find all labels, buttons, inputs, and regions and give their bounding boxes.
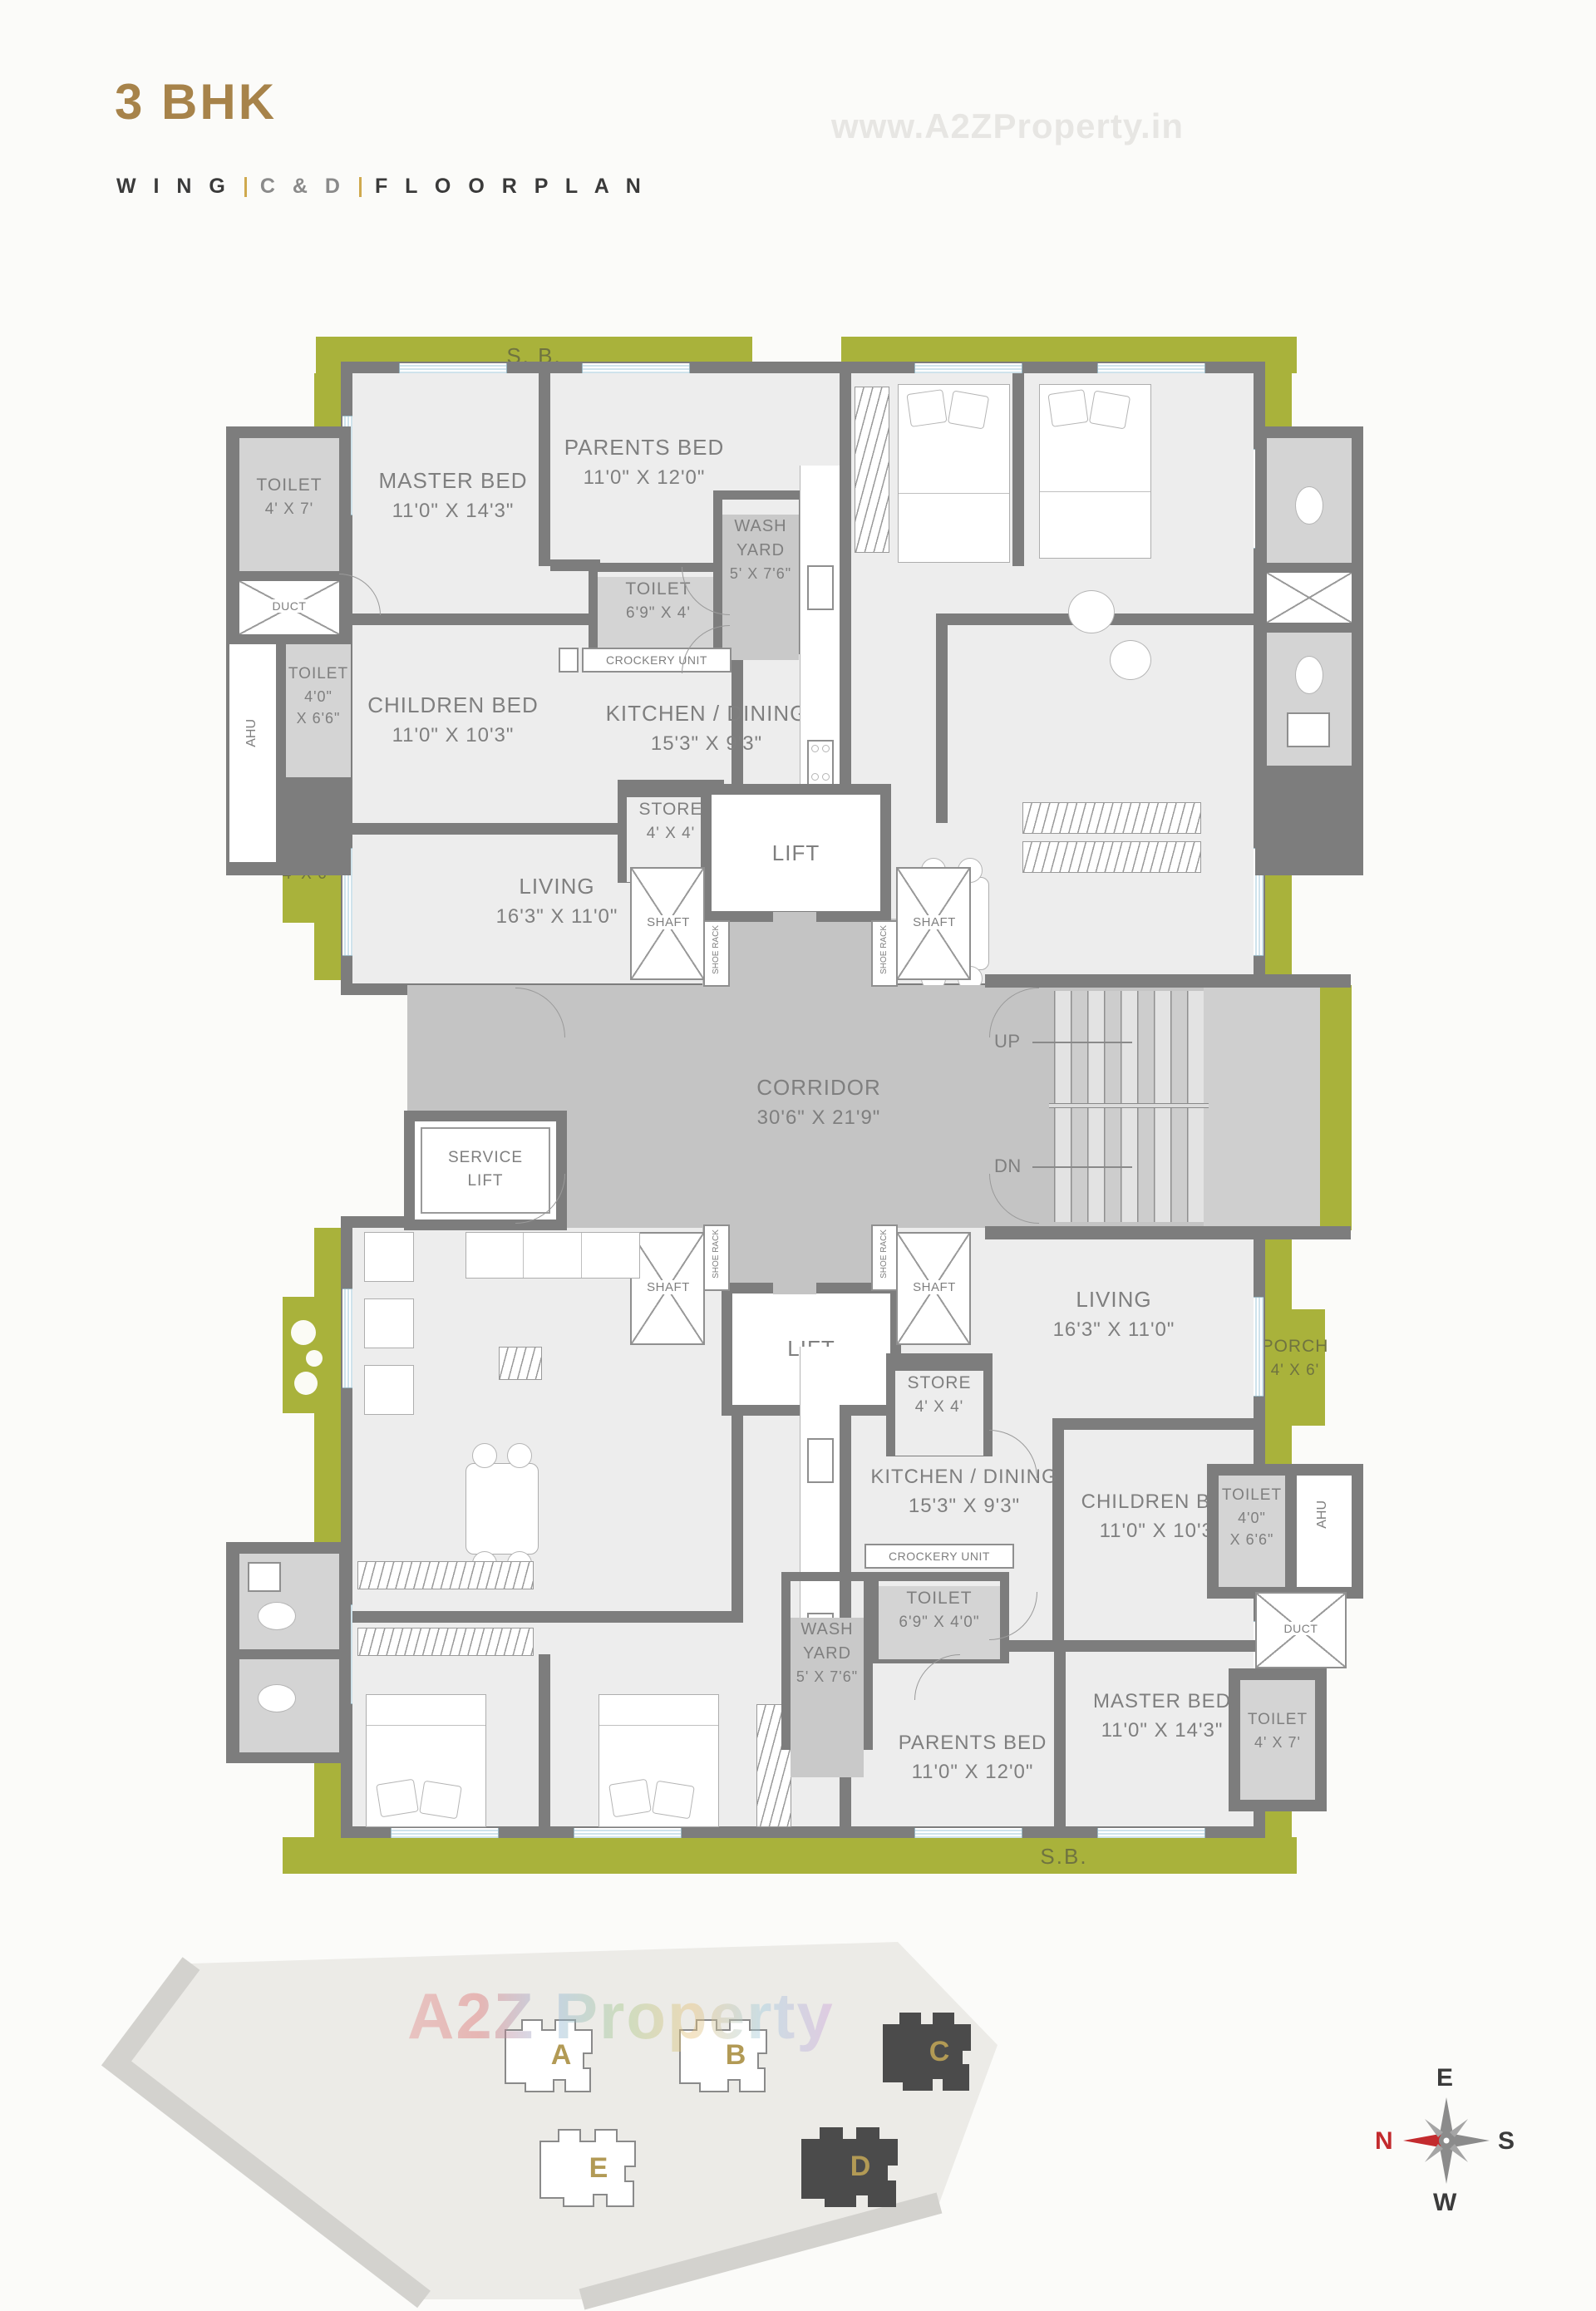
stair-divider [1049,1103,1209,1108]
shoe-rack: SHOE RACK [703,1224,730,1291]
room-toilet-left-c: TOILET 4'0" X 6'6" [286,644,351,777]
lift-door-gap [773,912,816,924]
shoe-rack-label: SHOE RACK [712,1229,721,1279]
crockery-unit-d: CROCKERY UNIT [864,1544,1014,1569]
chair [472,1443,497,1468]
corridor-name: CORRIDOR [731,1072,906,1104]
sink-icon [248,1562,281,1592]
shoe-rack-label: SHOE RACK [879,1229,889,1279]
kitchen-d-dims: 15'3" X 9'3" [856,1492,1072,1521]
master-c-dims: 11'0" X 14'3" [357,497,549,526]
page-title: 3 BHK [115,73,277,131]
tv-unit [499,1347,542,1380]
ottoman [1110,640,1151,680]
toilet [1267,633,1352,766]
toilet-left-c-dims1: 4'0" [286,686,351,707]
wash-c-l3: 5' X 7'6" [722,563,799,584]
stove-icon [807,740,834,786]
sink-icon [807,565,834,610]
room-toilet-top-d: TOILET 4' X 7' [1240,1680,1315,1800]
service-lift-l1: SERVICE [415,1146,556,1170]
porch-d-dims: 4' X 6' [1259,1359,1332,1382]
window [914,363,1022,373]
wing-c-label: C [877,2005,1002,2098]
sb-label-bottom: S.B. [981,1844,1147,1870]
sink-icon [807,1438,834,1483]
window [399,363,507,373]
subtitle-floorplan: F L O O R P L A N [375,175,647,199]
shoe-rack-label: SHOE RACK [879,925,889,974]
shoe-rack: SHOE RACK [871,1224,898,1291]
watermark-bottom: A2Z Property [407,1978,835,2054]
ahu-c-label: AHU [244,719,259,747]
window [1254,1297,1263,1397]
wc-icon [1295,486,1323,525]
armchair [364,1232,414,1282]
porch-unit-d: PORCH 4' X 6' [1263,1309,1325,1426]
children-c-dims: 11'0" X 10'3" [357,722,549,751]
window [914,1828,1022,1838]
window [391,1828,499,1838]
compass-w: W [1433,2189,1456,2217]
toilet-left-d-dims2: X 6'6" [1219,1529,1285,1550]
lift-top-label: LIFT [712,838,880,870]
shoe-rack-label: SHOE RACK [712,925,721,974]
master-c-label: MASTER BED [357,466,549,497]
wash-c-l2: YARD [722,539,799,563]
subtitle-divider-icon [244,177,247,197]
parents-d-dims: 11'0" X 12'0" [881,1758,1064,1787]
living-d-dims: 16'3" X 11'0" [1006,1316,1222,1345]
wall [731,1413,743,1621]
wardrobe [357,1628,534,1656]
toilet-top-d-label: TOILET [1240,1708,1315,1732]
parents-d-label: PARENTS BED [881,1729,1064,1758]
corridor-dims: 30'6" X 21'9" [731,1104,906,1133]
wash-d-l2: YARD [791,1642,864,1666]
wardrobe [1022,802,1201,834]
sofa [465,1232,640,1279]
window [342,1289,352,1388]
room-living-d: LIVING 16'3" X 11'0" [1006,1284,1222,1344]
shaft: SHAFT [896,867,971,980]
parents-c-dims: 11'0" X 12'0" [553,464,736,493]
toilet-mid-d-dims: 6'9" X 4'0" [879,1611,1000,1634]
toilet-top-c-dims: 4' X 7' [239,498,339,521]
kitchen-c-dims: 15'3" X 9'3" [582,730,831,759]
toilet-left-c-label: TOILET [286,663,351,686]
toilet-mid-d-label: TOILET [879,1586,1000,1611]
wall [1012,373,1024,566]
wall [1052,1418,1263,1430]
wing-d-label: D [794,2118,927,2215]
leader-line [1032,1166,1132,1168]
toilet [239,1659,339,1752]
toilet [1267,438,1352,563]
wash-d-l3: 5' X 7'6" [791,1666,864,1688]
wall [352,1611,743,1623]
bed [598,1694,719,1827]
kitchen-d-label: KITCHEN / DINING [856,1463,1072,1492]
bed [366,1694,486,1827]
shaft-label: SHAFT [910,1280,958,1294]
toilet [239,1554,339,1649]
toilet-top-d-dims: 4' X 7' [1240,1732,1315,1753]
stair-landing [1204,988,1320,1226]
living-d-label: LIVING [1006,1284,1222,1316]
stair-wall [985,1226,1351,1239]
toilet-top-c-label: TOILET [239,473,339,498]
window [1097,1828,1205,1838]
shaft-label: SHAFT [910,915,958,929]
room-kitchen-c: KITCHEN / DINING 15'3" X 9'3" [582,698,831,758]
toilet-left-c-dims2: X 6'6" [286,707,351,729]
shaft-label: SHAFT [644,1280,692,1294]
wc-icon [258,1602,296,1630]
crockery-d-label: CROCKERY UNIT [866,1550,1012,1563]
wash-d-l1: WASH [791,1618,864,1642]
toilet-left-d-dims1: 4'0" [1219,1507,1285,1529]
bed [1039,384,1151,559]
duct [1267,573,1352,623]
compass-n: N [1375,2127,1393,2156]
wardrobe [1022,841,1201,873]
shaft: SHAFT [630,1232,705,1345]
room-parents-bed-d: PARENTS BED 11'0" X 12'0" [881,1729,1064,1787]
duct-unit-d: DUCT [1255,1592,1347,1668]
subtitle-wing: W I N G [116,175,231,199]
armchair [364,1365,414,1415]
room-children-bed-c: CHILDREN BED 11'0" X 10'3" [357,690,549,750]
window [574,1828,682,1838]
room-toilet-left-d: TOILET 4'0" X 6'6" [1219,1476,1285,1587]
room-wash-yard-d: WASH YARD 5' X 7'6" [781,1572,873,1750]
crockery-sink-icon [559,648,579,673]
compass-s: S [1498,2127,1515,2156]
room-toilet-mid-d: TOILET 6'9" X 4'0" [869,1572,1009,1663]
children-c-label: CHILDREN BED [357,690,549,722]
wardrobe [855,387,889,553]
shoe-rack: SHOE RACK [703,920,730,987]
window [582,363,690,373]
leader-line [1032,1042,1132,1043]
duct-c-label: DUCT [268,599,311,613]
subtitle-wing-letters: C & D [260,175,346,199]
master-d-label: MASTER BED [1071,1688,1254,1717]
stair-wall [985,974,1351,988]
wash-c-l1: WASH [722,515,799,539]
store-d-dims: 4' X 4' [895,1396,983,1419]
wing-e-label: E [532,2121,665,2215]
watermark-top: www.A2ZProperty.in [831,106,1184,146]
master-d-dims: 11'0" X 14'3" [1071,1717,1254,1746]
shoe-rack: SHOE RACK [871,920,898,987]
wc-icon [1295,656,1323,694]
ottoman [1068,590,1115,633]
dining-table [465,1463,539,1555]
armchair [364,1298,414,1348]
wall [936,613,948,823]
store-d-label: STORE [895,1371,983,1396]
compass: E S W N [1372,2057,1521,2224]
corridor-lobby-bottom [702,1224,898,1286]
room-toilet-top-c: TOILET 4' X 7' [239,438,339,571]
chair [507,1443,532,1468]
parents-c-label: PARENTS BED [553,432,736,464]
wc-icon [258,1684,296,1712]
ahu-unit-c: AHU [229,644,276,862]
porch-bottom-left [283,1297,342,1413]
room-store-d: STORE 4' X 4' [886,1353,993,1456]
corridor-lobby-top [702,919,898,988]
ahu-unit-d: AHU [1297,1476,1352,1587]
ahu-d-label: AHU [1315,1500,1330,1529]
subtitle-divider-icon [359,177,362,197]
window [1097,363,1205,373]
page: { "header": { "title": "3 BHK", "subtitl… [0,0,1596,2304]
porch-plant-icon [291,1320,316,1345]
duct-d-label: DUCT [1279,1622,1323,1635]
balcony-sb-bottom: S.B. [283,1837,1297,1874]
wardrobe [357,1561,534,1589]
shaft: SHAFT [630,867,705,980]
bed [898,384,1010,563]
toilet-left-d-label: TOILET [1219,1484,1285,1507]
duct-unit-c: DUCT [239,581,339,634]
shaft-label: SHAFT [644,915,692,929]
kitchen-c-label: KITCHEN / DINING [582,698,831,730]
shaft: SHAFT [896,1232,971,1345]
porch-plant-icon [294,1372,318,1395]
room-kitchen-d: KITCHEN / DINING 15'3" X 9'3" [856,1463,1072,1521]
lift-top: LIFT [701,784,891,922]
shower-icon [1287,712,1330,747]
compass-e: E [1436,2064,1453,2092]
room-master-bed-c: MASTER BED 11'0" X 14'3" [357,466,549,525]
lift-door-gap [773,1283,816,1294]
page-subtitle: W I N G C & D F L O O R P L A N [116,175,647,199]
room-parents-bed-c: PARENTS BED 11'0" X 12'0" [553,432,736,492]
porch-plant-icon [306,1350,323,1367]
corridor-label: CORRIDOR 30'6" X 21'9" [731,1072,906,1132]
porch-d-label: PORCH [1259,1334,1332,1359]
balcony-strip-stairs [1320,985,1352,1230]
room-master-bed-d: MASTER BED 11'0" X 14'3" [1071,1688,1254,1746]
wall [539,1654,550,1838]
